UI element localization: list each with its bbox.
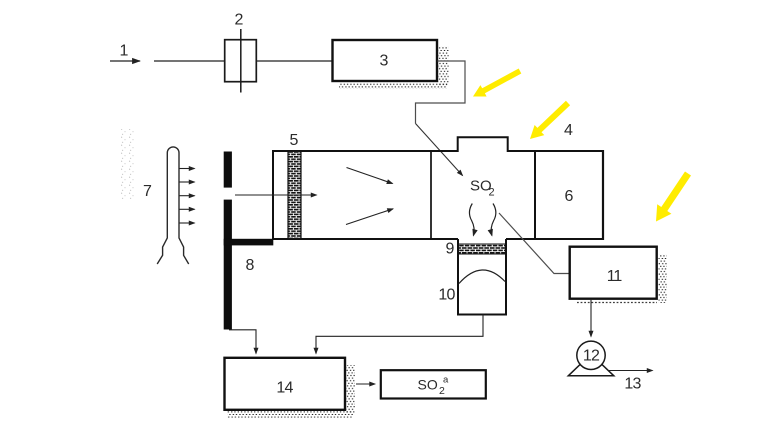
svg-text:2: 2 [439,385,445,397]
svg-text:7: 7 [143,183,152,200]
svg-text:12: 12 [583,348,600,365]
svg-text:14: 14 [276,380,293,397]
svg-text:11: 11 [607,268,623,285]
svg-text:9: 9 [446,241,455,258]
svg-text:13: 13 [624,376,641,393]
svg-text:4: 4 [564,122,573,139]
svg-text:5: 5 [290,132,299,149]
svg-text:1: 1 [120,43,129,60]
svg-text:10: 10 [438,287,455,304]
svg-text:SO: SO [418,377,438,393]
svg-text:a: a [443,375,449,386]
svg-text:3: 3 [380,53,389,70]
svg-text:8: 8 [246,257,255,274]
svg-text:2: 2 [235,12,244,29]
svg-text:6: 6 [565,188,574,205]
svg-text:2: 2 [489,187,495,199]
